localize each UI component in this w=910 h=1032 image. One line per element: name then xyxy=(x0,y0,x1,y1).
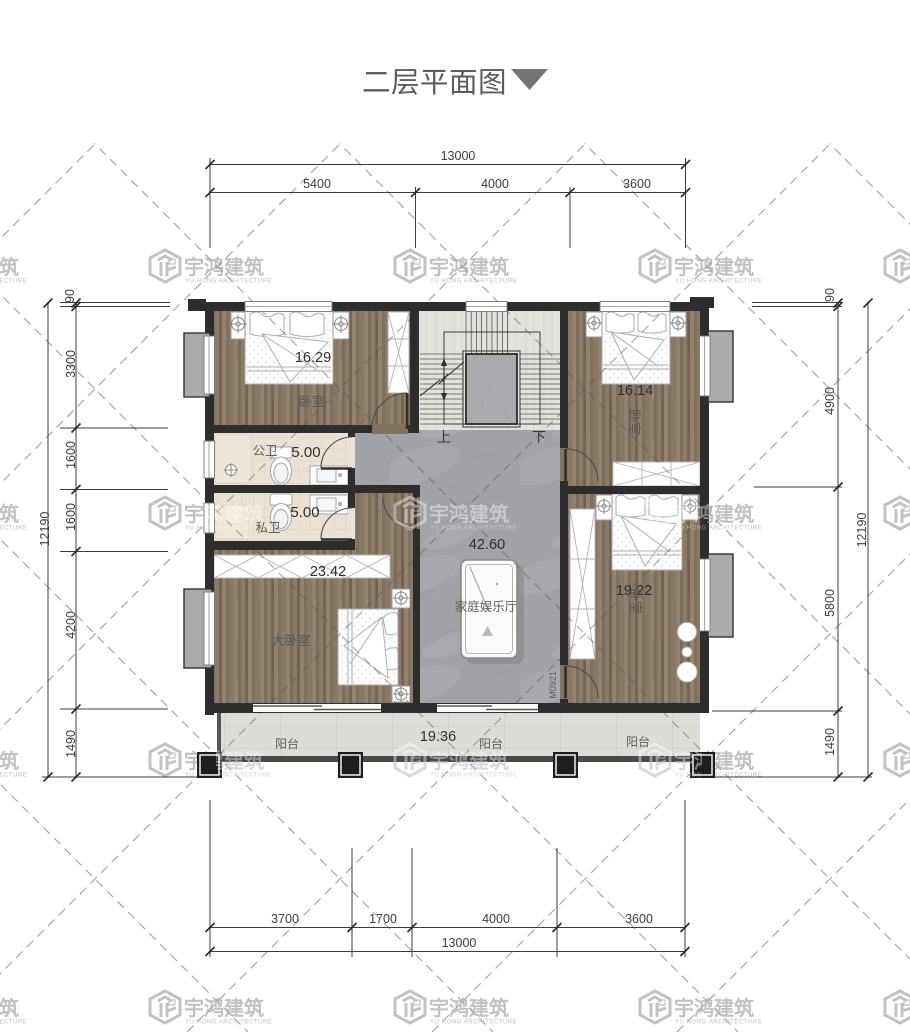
svg-text:阳台: 阳台 xyxy=(275,736,299,751)
svg-text:私卫: 私卫 xyxy=(255,521,280,535)
svg-text:阳台: 阳台 xyxy=(479,736,503,751)
svg-text:13000: 13000 xyxy=(441,149,476,163)
svg-text:卧室: 卧室 xyxy=(628,588,643,614)
svg-text:3600: 3600 xyxy=(623,177,651,191)
svg-text:1490: 1490 xyxy=(64,730,78,758)
svg-text:5800: 5800 xyxy=(823,589,837,617)
svg-text:12190: 12190 xyxy=(855,513,869,548)
svg-text:阳台: 阳台 xyxy=(626,734,650,749)
svg-text:19.36: 19.36 xyxy=(420,729,456,745)
svg-text:16.14: 16.14 xyxy=(617,383,653,399)
svg-text:二层平面图: 二层平面图 xyxy=(362,67,507,99)
svg-text:5400: 5400 xyxy=(303,177,331,191)
svg-text:卧室: 卧室 xyxy=(299,394,325,409)
svg-text:家庭娱乐厅: 家庭娱乐厅 xyxy=(455,599,518,614)
svg-text:5.00: 5.00 xyxy=(290,504,319,521)
svg-text:3700: 3700 xyxy=(271,912,299,926)
svg-text:90: 90 xyxy=(63,289,77,303)
svg-text:4000: 4000 xyxy=(481,177,509,191)
svg-text:16.29: 16.29 xyxy=(295,350,331,366)
svg-text:3300: 3300 xyxy=(64,350,78,378)
svg-text:42.60: 42.60 xyxy=(469,537,505,553)
svg-text:1490: 1490 xyxy=(823,728,837,756)
svg-text:23.42: 23.42 xyxy=(310,564,346,580)
svg-text:3600: 3600 xyxy=(625,912,653,926)
svg-text:1700: 1700 xyxy=(369,912,397,926)
svg-text:公卫: 公卫 xyxy=(252,444,277,458)
svg-text:卧室: 卧室 xyxy=(627,409,642,435)
svg-text:4000: 4000 xyxy=(482,912,510,926)
svg-text:上: 上 xyxy=(437,429,451,445)
svg-text:13000: 13000 xyxy=(442,936,477,950)
svg-text:M0921: M0921 xyxy=(548,671,558,699)
svg-text:1600: 1600 xyxy=(64,503,78,531)
svg-text:5.00: 5.00 xyxy=(291,444,320,461)
svg-text:4900: 4900 xyxy=(823,387,837,415)
svg-text:90: 90 xyxy=(823,288,837,302)
svg-text:4200: 4200 xyxy=(64,611,78,639)
svg-text:大卧室: 大卧室 xyxy=(271,633,310,648)
svg-text:下: 下 xyxy=(532,429,546,445)
svg-text:1600: 1600 xyxy=(64,441,78,469)
svg-text:12190: 12190 xyxy=(38,512,52,547)
